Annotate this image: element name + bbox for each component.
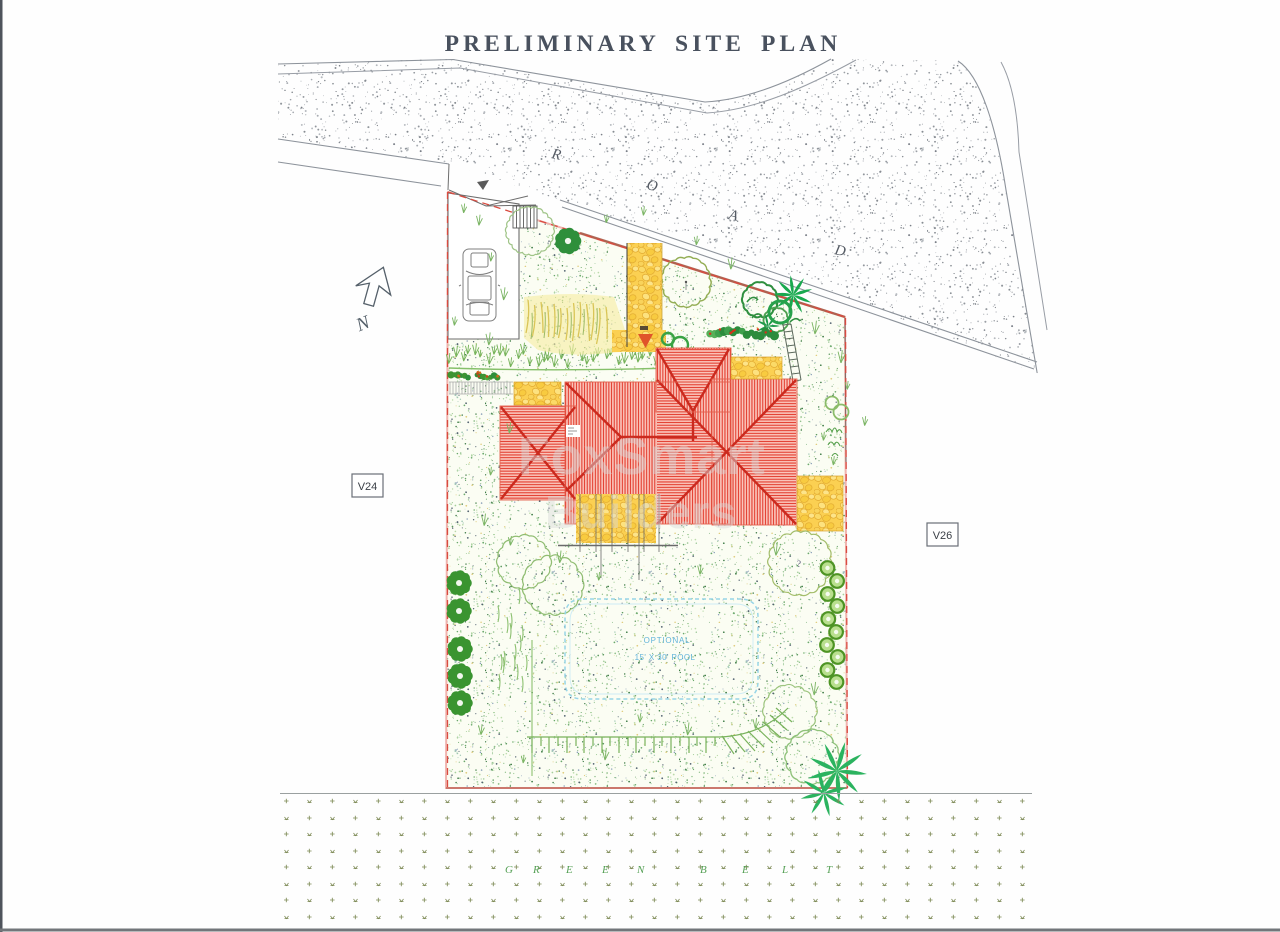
svg-text:E: E	[601, 864, 609, 876]
svg-text:V24: V24	[358, 481, 378, 493]
svg-text:E: E	[741, 864, 749, 876]
svg-text:R: R	[532, 864, 540, 876]
svg-text:B: B	[700, 864, 707, 876]
svg-text:FoxSmart: FoxSmart	[518, 428, 766, 486]
svg-text:PRELIMINARY SITE PLAN: PRELIMINARY SITE PLAN	[445, 31, 842, 57]
svg-text:Builders: Builders	[545, 486, 737, 538]
svg-text:V26: V26	[933, 530, 953, 542]
svg-text:E: E	[565, 864, 573, 876]
svg-text:T: T	[826, 864, 833, 876]
svg-text:15' X 30' POOL: 15' X 30' POOL	[635, 653, 696, 662]
svg-text:N: N	[636, 864, 645, 876]
svg-text:L: L	[781, 864, 788, 876]
svg-text:OPTIONAL: OPTIONAL	[644, 636, 691, 645]
svg-text:G: G	[505, 864, 513, 876]
svg-text:?: ?	[797, 559, 801, 569]
